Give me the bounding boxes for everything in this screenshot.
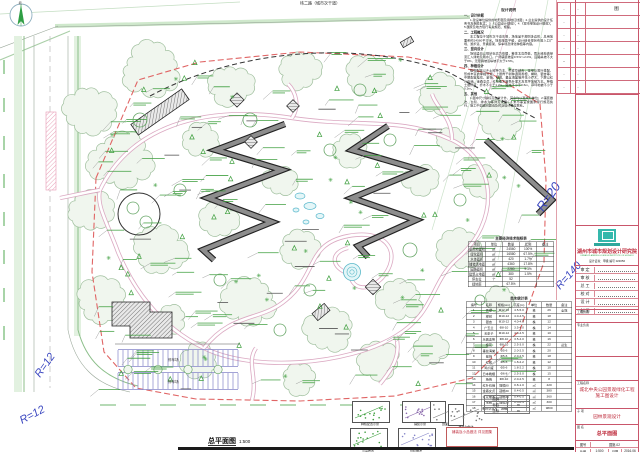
sheet-name-label: 图 名 — [577, 425, 584, 429]
shrub-symbol — [230, 95, 234, 99]
label-leader — [248, 253, 258, 258]
personnel-signature — [598, 283, 635, 288]
revision-cell: · — [558, 81, 571, 94]
table-cell: 总用地面积 — [468, 247, 485, 252]
sheet-no-label: 图号 — [576, 442, 591, 447]
table-cell: 67.5% — [502, 282, 519, 287]
label-leader — [258, 204, 265, 213]
table-cell: 铺装场地面积 — [468, 262, 485, 267]
plan-title-group: 总平面图1:500 — [208, 430, 250, 448]
tree-canopy-layer — [61, 39, 521, 396]
personnel-signature — [598, 275, 635, 280]
column-header: 规格(cm) — [496, 302, 511, 308]
title-block: 湖州市城市规划设计研究院 URBAN PLANNING & DESIGN INS… — [575, 0, 639, 452]
company-name-en: URBAN PLANNING & DESIGN INSTITUTE OF HUZ… — [576, 255, 638, 257]
table-cell: 绿化面积 — [468, 252, 485, 257]
label-leader — [344, 186, 352, 194]
personnel-label: 审 核 — [576, 275, 595, 281]
label-leader — [416, 107, 423, 113]
economic-indicator-table: 主要经济技术指标表项目单位数量比例备注总用地面积㎡24560100%绿化面积㎡1… — [468, 236, 555, 294]
personnel-row: 审 核 — [576, 274, 638, 282]
label-leader — [188, 311, 195, 320]
personnel-row: 总 工 — [576, 282, 638, 290]
shrub-symbol — [234, 280, 238, 284]
subitem-name: 园林景观设计 — [576, 414, 638, 420]
table-row: 绿地率67.5% — [468, 282, 554, 287]
specimen-tree — [384, 134, 396, 146]
table-cell: 建筑占地面积 — [468, 272, 485, 277]
table-cell: 园路面积 — [468, 267, 485, 272]
conifer-symbol — [327, 276, 331, 281]
shrub-symbol — [265, 298, 269, 302]
personnel-row: 设 计 — [576, 299, 638, 307]
label-leader — [130, 103, 133, 107]
table-cell — [557, 405, 572, 411]
conifer-symbol — [180, 234, 184, 239]
sheet-date-label: 日期 — [609, 449, 622, 452]
conifer-symbol — [335, 86, 339, 91]
label-leader — [353, 256, 358, 260]
tree-canopy — [283, 363, 316, 396]
tree-canopy — [302, 307, 352, 352]
label-leader — [122, 335, 125, 342]
project-name-label: 工程名称 — [577, 381, 589, 385]
tree-canopy — [133, 225, 189, 274]
label-leader — [96, 331, 100, 338]
notes-section-body: 本工程位于城市次干道东侧，场地呈不规则多边形，总用地面积约24560平方米。场地… — [464, 35, 553, 46]
revision-cell: · — [558, 29, 571, 42]
personnel-row: 校 对 — [576, 291, 638, 299]
sheet-footer: 图号 园施-02 比例 1:500 日期 2016.06 — [576, 440, 638, 452]
notes-section-body: 1.图中尺寸除标高以米计外，其余均以毫米为单位；2.铺装做法、台阶、排水沟等详见… — [464, 97, 553, 108]
label-leader — [452, 384, 456, 392]
label-leader — [372, 274, 379, 279]
conifer-symbol — [345, 179, 349, 184]
drawing-sheet: 北 R=12 R=12 R=20 R=140 纬二路（城市次干道） 停车场 停车… — [0, 0, 640, 452]
revision-cell: · — [558, 16, 571, 29]
column-header: 高度(m) — [511, 302, 526, 308]
personnel-signature — [598, 300, 635, 305]
label-leader — [169, 292, 176, 297]
frame-line — [556, 0, 557, 300]
label-leader — [453, 184, 464, 188]
project-name-cell: 工程名称 城北中央公园景观绿化工程 施工图设计 — [576, 380, 638, 408]
label-leader — [201, 176, 206, 182]
personnel-label: 总 工 — [576, 283, 595, 289]
notes-section-body: 1.建设单位提供的地形图及用地红线图；2.业主提供的设计任务书及相关批文；3.《… — [464, 18, 553, 29]
label-leader — [99, 230, 107, 237]
shrub-symbol — [107, 256, 111, 260]
conifer-symbol — [439, 308, 443, 313]
shrub-symbol — [283, 374, 287, 378]
label-leader — [202, 158, 210, 165]
shrub-symbol — [257, 273, 261, 277]
sheet-name-cell: 图 名 总平面图 — [576, 424, 638, 440]
personnel-label: 校 对 — [576, 291, 595, 297]
tree-canopy — [61, 88, 117, 136]
table-cell: 红叶石楠 — [481, 382, 496, 388]
plan-scale: 1:500 — [239, 439, 250, 444]
label-leader — [192, 76, 198, 85]
radius-label: R=12 — [33, 351, 58, 380]
notes-section-heading: 三、竖向设计 — [464, 48, 553, 52]
tree-canopy — [413, 334, 449, 366]
label-leader — [90, 389, 98, 396]
specimen-tree — [214, 274, 226, 286]
tree-canopy — [122, 39, 180, 97]
table-cell: 乐昌含笑 — [481, 336, 496, 342]
sheet-edge-band — [178, 447, 574, 450]
personnel-label: 审 定 — [576, 267, 595, 273]
crosswalk-hatch — [46, 112, 56, 190]
shrub-symbol — [329, 178, 333, 182]
conifer-symbol — [375, 163, 379, 168]
label-leader — [122, 358, 128, 365]
shrub-symbol — [352, 286, 356, 290]
tree-canopy — [346, 55, 394, 97]
legend-thumbnail — [448, 404, 464, 426]
label-leader — [408, 346, 414, 352]
north-arrow: 北 — [10, 0, 32, 26]
personnel-row: 审 定 — [576, 266, 638, 274]
legend-mini-table: 图例标高m坐标m — [484, 395, 530, 414]
label-leader — [363, 215, 372, 219]
label-leader — [443, 175, 449, 181]
institute-logo-base — [594, 243, 620, 246]
label-leader — [410, 145, 414, 154]
conifer-symbol — [378, 113, 382, 118]
label-leader — [376, 172, 383, 176]
legend-thumbnail — [352, 401, 390, 423]
personnel-signature — [598, 267, 635, 272]
label-leader — [257, 148, 263, 155]
legend-note-box: 铺装及小品做法 详见图集 — [446, 427, 498, 447]
shrub-symbol — [153, 183, 157, 187]
label-leader — [291, 151, 296, 156]
table-cell: 金森女贞 — [481, 388, 496, 394]
label-leader — [339, 225, 344, 233]
notes-section-body: 植物配置以乡土树种为主，乔灌草结合，常绿与落叶搭配，形成丰富的季相景观。上层骨干… — [464, 69, 553, 91]
label-leader — [355, 105, 358, 113]
tree-canopy — [280, 229, 321, 269]
label-leader — [393, 323, 397, 331]
shrub-symbol — [174, 77, 178, 81]
tree-canopy — [375, 279, 422, 321]
road-name-label: 纬二路（城市次干道） — [300, 0, 340, 6]
table-cell: 9800 — [542, 405, 557, 411]
revision-cell: · — [558, 3, 571, 16]
specimen-tree — [403, 243, 417, 257]
table-cell: 水体面积 — [468, 257, 485, 262]
project-name-line2: 施工图设计 — [576, 393, 638, 399]
shrub-symbol — [334, 155, 338, 159]
shrub-symbol — [400, 295, 404, 299]
revision-cell: · — [558, 68, 571, 81]
label-leader — [325, 100, 329, 106]
indicator-table-title: 主要经济技术指标表 — [468, 236, 554, 241]
subitem-label: 子 项 — [577, 409, 584, 413]
label-leader — [350, 375, 356, 384]
notes-section-heading: 一、设计依据 — [464, 14, 553, 18]
revision-cell: ·· — [558, 55, 571, 68]
label-leader — [263, 91, 273, 100]
notes-title: 设计说明 — [464, 8, 553, 12]
shrub-symbol — [202, 355, 206, 359]
plan-title: 总平面图 — [208, 438, 236, 446]
table-cell — [520, 282, 537, 287]
shrub-symbol — [349, 200, 353, 204]
conifer-symbol — [416, 381, 420, 386]
mini-table-cell: 坐标 — [485, 408, 508, 414]
label-leader — [456, 158, 463, 164]
label-leader — [117, 190, 120, 200]
label-leader — [191, 323, 198, 328]
plaza-tree — [127, 202, 139, 214]
institute-logo-icon — [598, 229, 616, 242]
parking-label: 停车场 — [168, 357, 179, 362]
sheet-no: 园施-02 — [591, 442, 638, 447]
mini-table-cell: m — [507, 408, 530, 414]
conifer-symbol — [129, 290, 133, 295]
table-cell: 绿地率 — [468, 282, 485, 287]
legend-label: 种植配置示意 — [350, 422, 390, 426]
table-cell — [485, 282, 502, 287]
label-leader — [452, 168, 461, 175]
parking-tree — [124, 365, 132, 373]
conifer-symbol — [345, 240, 349, 245]
conifer-symbol — [230, 159, 234, 164]
notes-section-body: 场地竖向以现状标高为依据，整体北高南低，雨水经地表径流汇入绿地及雨水口。广场铺装… — [464, 52, 553, 63]
table-cell: 日本晚樱 — [481, 371, 496, 377]
row-label: 专业负责 — [577, 323, 589, 327]
personnel-label: 设 计 — [576, 299, 595, 305]
label-leader — [204, 315, 212, 320]
conifer-symbol — [228, 176, 232, 181]
shrub-symbol — [110, 133, 114, 137]
shrub-symbol — [398, 58, 402, 62]
legend-thumbnail — [430, 401, 446, 423]
label-leader — [164, 192, 173, 197]
sheet-name: 总平面图 — [576, 430, 638, 437]
mini-table-row: 坐标m — [485, 408, 530, 414]
shrub-symbol — [359, 210, 363, 214]
specimen-tree — [274, 324, 286, 336]
label-leader — [138, 223, 143, 229]
label-leader — [172, 272, 177, 275]
north-label: 北 — [19, 0, 23, 5]
shrub-symbol — [304, 249, 308, 253]
certificate-line: 设计证书：甲级 编号 023056 — [576, 259, 638, 263]
pavilion — [400, 36, 413, 47]
tree-canopy — [279, 52, 322, 91]
conifer-symbol — [317, 132, 321, 137]
revision-cell: · — [558, 42, 571, 55]
conifer-symbol — [422, 213, 426, 218]
notes-section-heading: 四、种植设计 — [464, 64, 553, 68]
table-cell: 垂丝海棠 — [481, 348, 496, 354]
label-leader — [433, 115, 440, 118]
label-leader — [324, 53, 332, 63]
sheet-scale-label: 比例 — [576, 449, 591, 452]
personnel-signature-table: 审 定审 核总 工校 对设 计制 图 — [576, 265, 638, 315]
parking-tree — [184, 365, 192, 373]
personnel-signature — [598, 292, 635, 297]
row-label: 工程负责 — [577, 310, 589, 314]
table-cell — [537, 282, 554, 287]
plaza-tree — [140, 216, 152, 228]
design-notes: 设计说明一、设计依据1.建设单位提供的地形图及用地红线图；2.业主提供的设计任务… — [464, 8, 554, 234]
subitem-cell: 子 项 园林景观设计 — [576, 408, 638, 424]
label-leader — [202, 275, 209, 278]
shrub-symbol — [420, 268, 424, 272]
parking-label: 停车场 — [168, 379, 179, 384]
conifer-symbol — [237, 343, 241, 348]
radius-label: R=12 — [18, 404, 47, 427]
indicator-table: 项目单位数量比例备注总用地面积㎡24560100%绿化面积㎡1658067.5%… — [468, 242, 554, 288]
conifer-symbol — [182, 76, 186, 81]
parking-tree — [214, 365, 222, 373]
